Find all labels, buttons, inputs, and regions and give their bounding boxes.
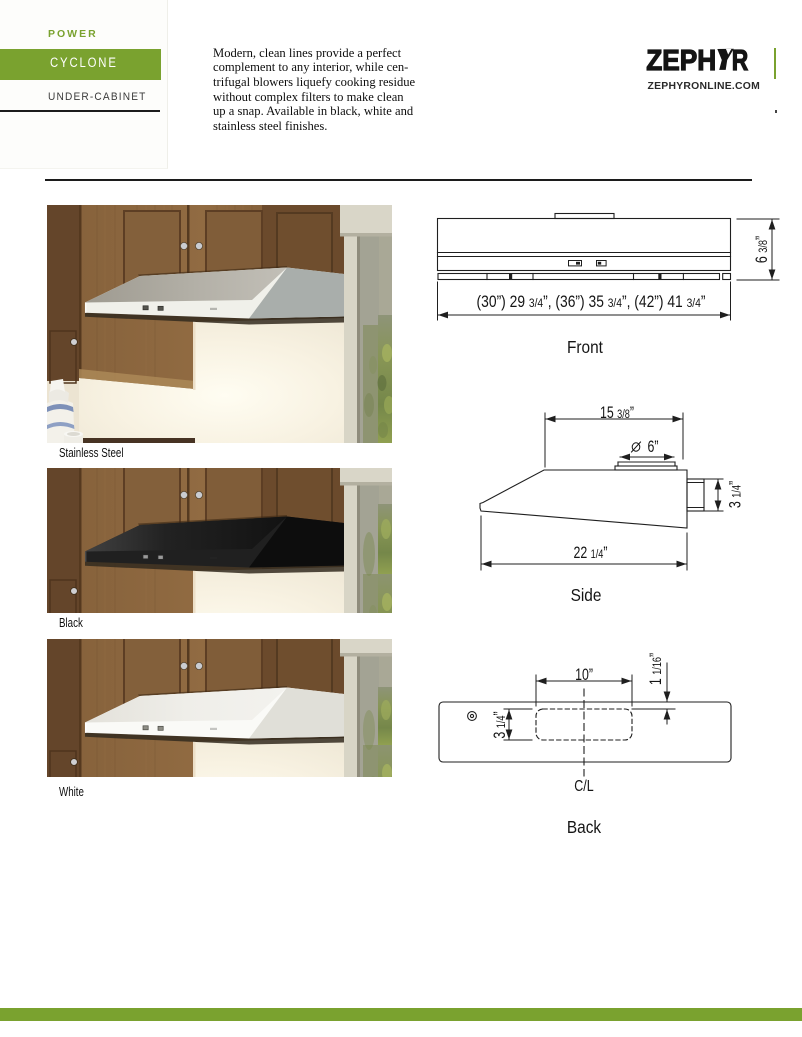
svg-text:6”: 6” [647, 438, 658, 456]
svg-text:R: R [732, 45, 749, 73]
svg-text:ZEPH: ZEPH [646, 45, 716, 73]
svg-text:1 1/16”: 1 1/16” [647, 653, 665, 685]
svg-text:22 1/4”: 22 1/4” [573, 544, 607, 562]
svg-text:3 1/4”: 3 1/4” [491, 711, 509, 738]
svg-text:(30”) 29 3/4”, (36”) 35 3/4”,: (30”) 29 3/4”, (36”) 35 3/4”, (42”) 41 3… [477, 293, 706, 311]
svg-text:6 3/8”: 6 3/8” [753, 236, 771, 263]
svg-text:10”: 10” [575, 666, 593, 684]
svg-text:3 1/4”: 3 1/4” [727, 481, 745, 508]
svg-text:15 3/8”: 15 3/8” [600, 405, 634, 423]
